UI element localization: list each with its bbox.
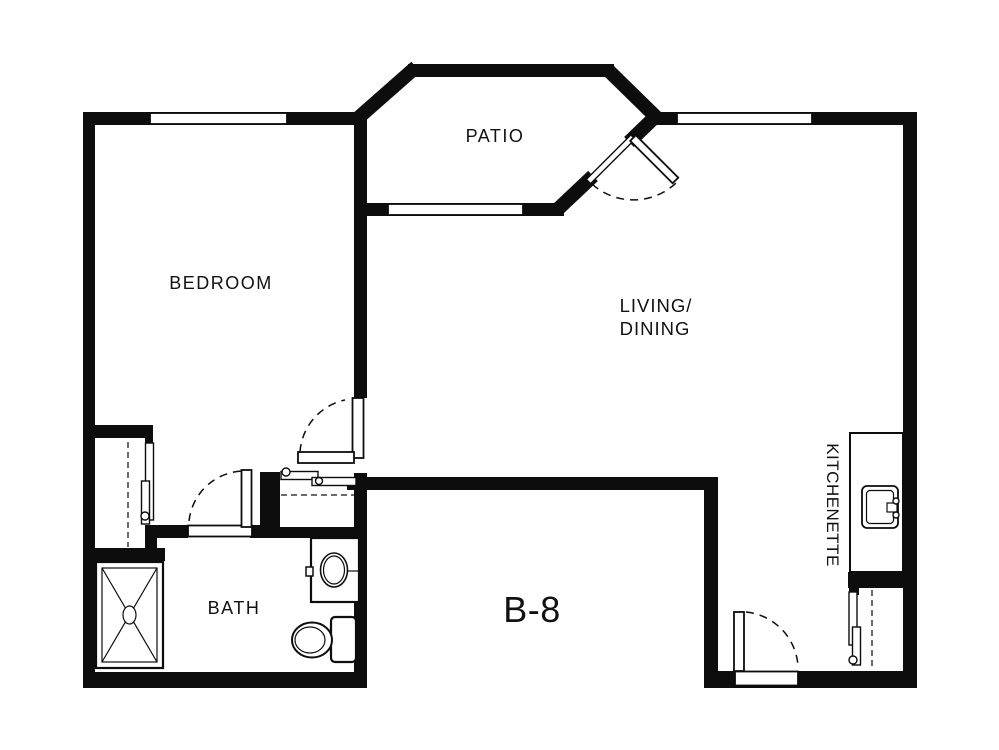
- wall-hall-closet-bottom: [260, 527, 366, 538]
- door-patio-swing-arc: [592, 183, 676, 200]
- patio-label: PATIO: [466, 126, 525, 146]
- closets: [128, 442, 872, 668]
- kitchenette-label: KITCHENETTE: [823, 443, 842, 567]
- fixtures: [96, 433, 903, 668]
- wall-shower-top: [83, 548, 165, 561]
- bedroom-label: BEDROOM: [169, 273, 273, 293]
- window-icon-patio: [388, 204, 523, 215]
- living-label-line2: DINING: [620, 318, 691, 339]
- walls: [83, 64, 917, 688]
- wall-notch-right: [704, 477, 718, 683]
- door-bath-swing-arc: [189, 471, 243, 521]
- wall-notch-top: [347, 477, 718, 490]
- floor-plan-drawing: BEDROOM PATIO LIVING/ DINING BATH B-8 KI…: [0, 0, 999, 750]
- bath-label: BATH: [208, 598, 261, 618]
- wall-bedroom-living-divider: [354, 112, 367, 398]
- kitchen-sink-icon: [850, 433, 903, 572]
- window-icon-living: [677, 113, 812, 124]
- wall-patio-left-diagonal: [357, 67, 416, 119]
- living-label-line1: LIVING/: [620, 295, 693, 316]
- unit-number-label: B-8: [503, 589, 561, 630]
- wall-patio-top: [408, 64, 614, 77]
- entry-closet-pull-knob: [849, 656, 857, 664]
- door-swing-icon-bedroom-leaf: [353, 398, 364, 458]
- hall-closet-pull-knob-2: [316, 478, 323, 485]
- door-swing-icon-bath-leaf: [242, 470, 252, 527]
- door-swing-icon-entry-leaf: [734, 612, 744, 671]
- door-entry-swing-arc: [746, 612, 798, 666]
- toilet-icon: [292, 617, 356, 662]
- bedroom-closet-pull-knob: [141, 512, 149, 520]
- door-patio-opening: [586, 135, 635, 184]
- window-icon-bedroom: [150, 113, 287, 124]
- shower-icon: [96, 562, 163, 668]
- wall-bottom-bath: [83, 672, 367, 688]
- door-bedroom-open-position: [298, 452, 354, 463]
- wall-bath-top-corner: [145, 525, 157, 550]
- wall-bedroom-closet-top: [83, 425, 153, 438]
- wall-right-exterior: [903, 112, 917, 688]
- wall-patio-right-diagonal: [608, 70, 656, 117]
- labels: BEDROOM PATIO LIVING/ DINING BATH B-8 KI…: [169, 126, 842, 630]
- floor-plan-page: BEDROOM PATIO LIVING/ DINING BATH B-8 KI…: [0, 0, 999, 750]
- vanity-sink-icon: [306, 538, 359, 602]
- wall-kitchenette-bottom: [848, 572, 917, 588]
- door-swing-icon-patio-leaf: [630, 135, 678, 183]
- hall-closet-pull-knob-1: [282, 468, 290, 476]
- wall-left-exterior: [83, 112, 95, 688]
- door-bedroom-swing-arc: [300, 400, 345, 452]
- door-entry-threshold: [735, 672, 798, 686]
